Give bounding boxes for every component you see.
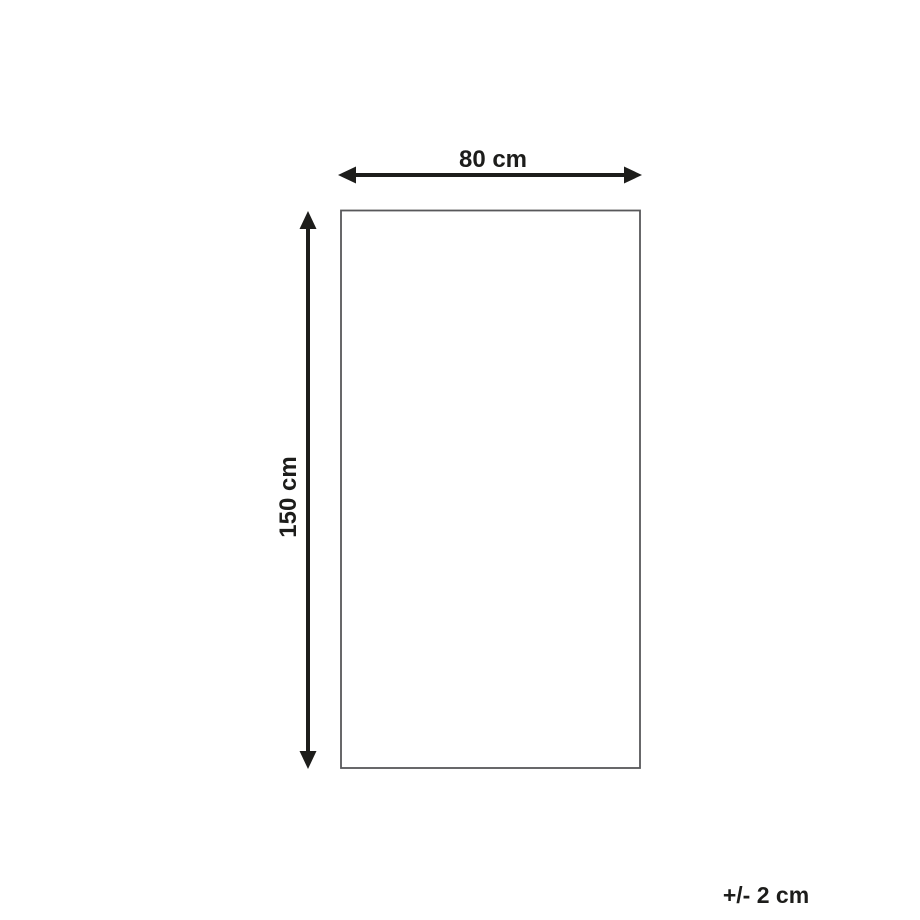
height-label: 150 cm bbox=[275, 456, 302, 537]
width-arrowhead-left-icon bbox=[338, 167, 356, 184]
width-arrowhead-right-icon bbox=[624, 167, 642, 184]
height-arrowhead-bottom-icon bbox=[300, 751, 317, 769]
height-dimension-arrow bbox=[300, 211, 317, 769]
tolerance-label: +/- 2 cm bbox=[723, 882, 809, 908]
height-arrowhead-top-icon bbox=[300, 211, 317, 229]
width-label: 80 cm bbox=[459, 146, 527, 173]
dimension-diagram: 80 cm 150 cm +/- 2 cm bbox=[0, 0, 920, 920]
diagram-svg: 80 cm 150 cm +/- 2 cm bbox=[0, 0, 920, 920]
product-outline-rectangle bbox=[341, 211, 640, 769]
